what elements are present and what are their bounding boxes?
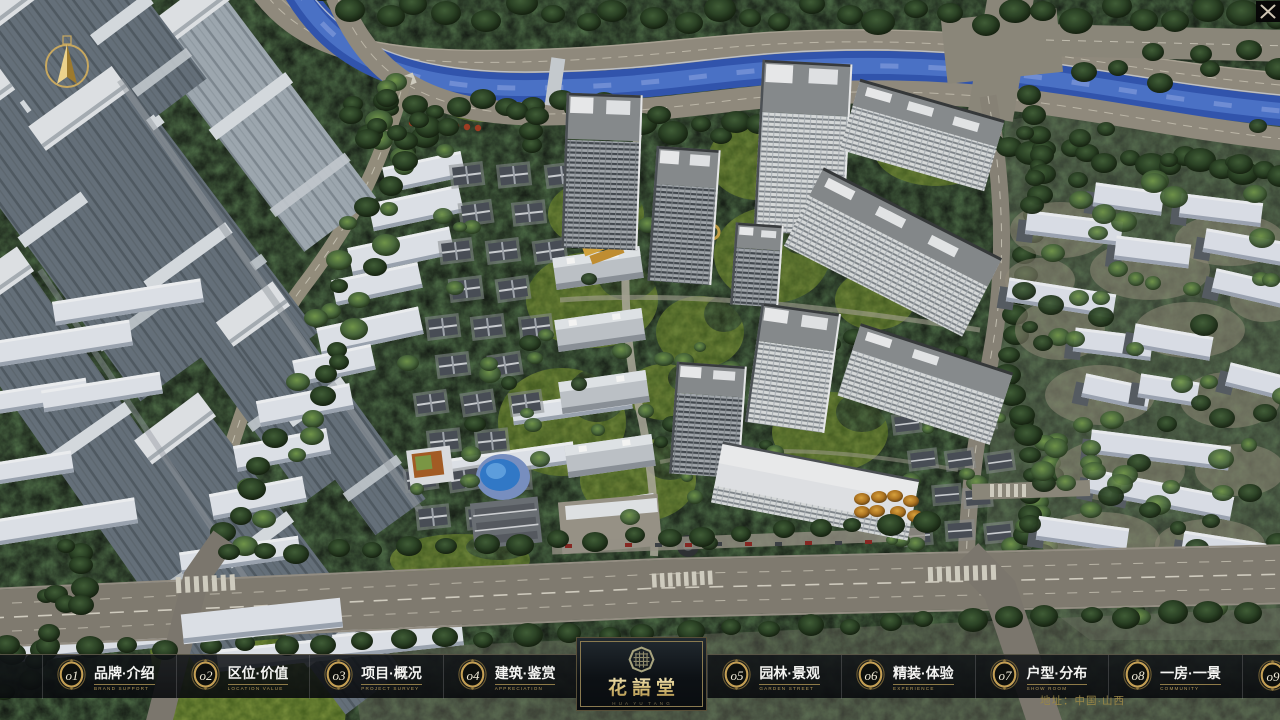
svg-text:o7: o7 (998, 667, 1012, 682)
svg-text:o3: o3 (333, 667, 347, 682)
svg-text:o2: o2 (199, 667, 213, 682)
svg-text:o6: o6 (864, 667, 878, 682)
svg-text:o5: o5 (731, 667, 745, 682)
svg-text:o4: o4 (466, 667, 480, 682)
svg-text:o1: o1 (66, 667, 79, 682)
svg-text:o8: o8 (1132, 667, 1146, 682)
svg-text:o9: o9 (1267, 669, 1280, 684)
